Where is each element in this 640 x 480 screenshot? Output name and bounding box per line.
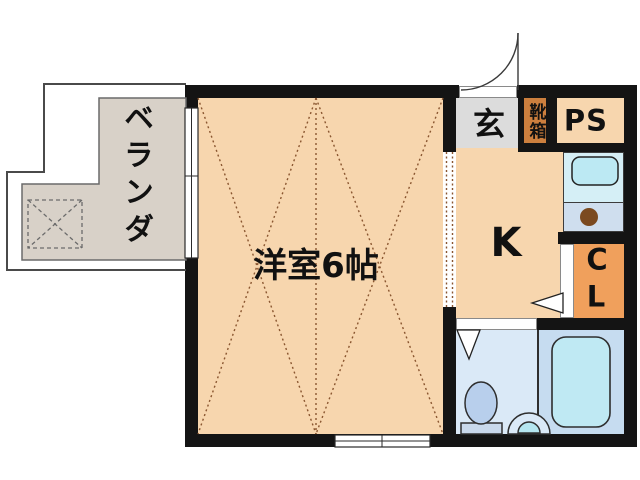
plan-linework (0, 0, 640, 480)
closet-label-l: L (587, 283, 605, 312)
stove-burner-icon (580, 208, 598, 226)
kitchen-sink-icon (572, 157, 618, 185)
entrance-door-swing (461, 33, 518, 90)
floor-plan: ベランダ 洋室6帖 玄 靴箱 PS K C L (0, 0, 640, 480)
main-room-label: 洋室6帖 (253, 249, 379, 283)
window-bottom (335, 435, 430, 447)
shoe-box-label: 靴箱 (527, 103, 544, 141)
room-kitchen-opening (447, 152, 453, 307)
toilet-icon (461, 382, 502, 434)
wash-basin-icon (508, 413, 550, 434)
pipe-space-label: PS (564, 107, 608, 136)
closet-door-swing-triangle (532, 293, 563, 313)
window-left (185, 108, 198, 258)
bathtub-icon (552, 337, 610, 427)
bathroom-door-swing-triangle (457, 330, 480, 359)
balcony-label: ベランダ (120, 102, 150, 250)
kitchen-label: K (491, 223, 522, 263)
balcony-floor (22, 98, 186, 260)
closet-label-c: C (586, 246, 607, 275)
entrance-label: 玄 (473, 108, 505, 140)
